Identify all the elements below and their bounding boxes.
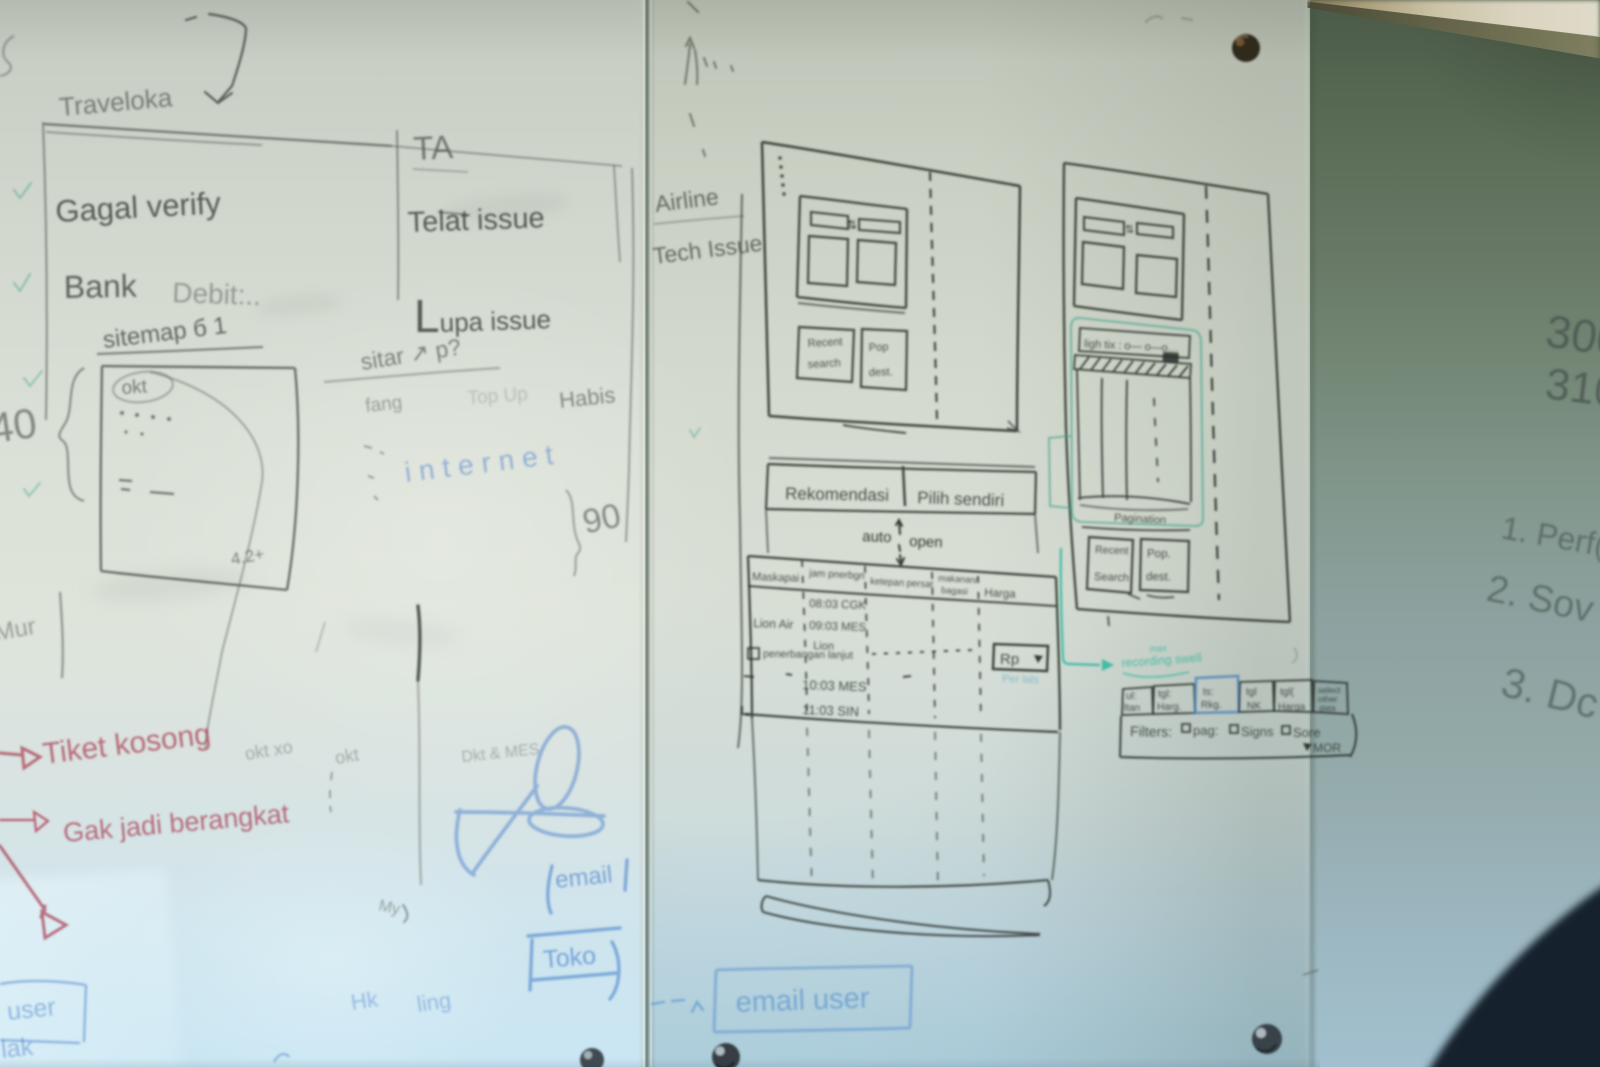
svg-text:ul:: ul: — [1126, 691, 1137, 702]
svg-text:310: 310 — [1543, 359, 1600, 417]
svg-text:Debit:..: Debit:.. — [172, 277, 262, 311]
svg-text:user: user — [6, 993, 57, 1026]
svg-text:09:03 MES: 09:03 MES — [809, 620, 867, 634]
svg-text:40: 40 — [0, 399, 40, 452]
svg-text:Telat issue: Telat issue — [407, 202, 545, 239]
svg-text:Signs: Signs — [1241, 724, 1274, 739]
svg-text:tgl: tgl — [1246, 687, 1257, 698]
svg-text:NK: NK — [1247, 701, 1261, 712]
svg-text:dest.: dest. — [1146, 571, 1171, 583]
svg-text:lak: lak — [0, 1033, 35, 1064]
svg-text:open: open — [909, 533, 943, 551]
svg-text:ts:: ts: — [1203, 687, 1214, 698]
svg-text:Tiket kosong: Tiket kosong — [41, 718, 213, 771]
svg-text:Habis: Habis — [558, 382, 617, 413]
svg-text:internet: internet — [403, 438, 563, 488]
svg-text:email: email — [554, 861, 614, 894]
svg-text:4.2+: 4.2+ — [229, 544, 265, 569]
svg-text:Recent: Recent — [807, 336, 842, 350]
svg-text:jam pnerbgn: jam pnerbgn — [808, 568, 865, 582]
svg-text:1. Perf(: 1. Perf( — [1499, 509, 1600, 563]
svg-text:Tech Issue: Tech Issue — [651, 230, 763, 269]
svg-text:MOR: MOR — [1313, 741, 1341, 755]
svg-text:90: 90 — [579, 496, 624, 541]
svg-text:okt: okt — [121, 376, 148, 399]
svg-text:Maskapai: Maskapai — [752, 571, 799, 585]
svg-text:Airline: Airline — [653, 183, 720, 217]
svg-text:tgl(: tgl( — [1280, 687, 1295, 698]
svg-text:okt xo: okt xo — [243, 737, 294, 764]
svg-text:ketepan persat: ketepan persat — [870, 576, 934, 590]
svg-text:Rkg.: Rkg. — [1201, 700, 1222, 711]
svg-text:Pop: Pop — [869, 341, 889, 354]
svg-text:TA: TA — [412, 128, 454, 167]
svg-text:08:03 CGK: 08:03 CGK — [809, 598, 867, 612]
svg-text:Toko: Toko — [542, 941, 597, 973]
svg-text:okt: okt — [333, 744, 360, 768]
svg-text:Per lals: Per lals — [1002, 673, 1040, 686]
svg-text:My: My — [377, 897, 401, 918]
svg-text:Search: Search — [1094, 571, 1129, 584]
svg-text:3. Dc: 3. Dc — [1497, 658, 1600, 727]
svg-text:data: data — [1319, 703, 1336, 713]
svg-text:fang: fang — [364, 392, 403, 417]
svg-text:ltan: ltan — [1124, 703, 1140, 714]
svg-text:sitemap б 1: sitemap б 1 — [101, 312, 228, 354]
svg-text:Harga: Harga — [1278, 702, 1306, 713]
svg-text:sitar ↗ p?: sitar ↗ p? — [359, 333, 463, 374]
svg-text:Hk: Hk — [349, 986, 380, 1015]
svg-text:⇅: ⇅ — [847, 218, 857, 232]
svg-text:penerbangan lanjut: penerbangan lanjut — [763, 648, 853, 662]
svg-text:Lion Air: Lion Air — [753, 616, 793, 631]
svg-text:L: L — [414, 290, 440, 342]
svg-text:bagasi: bagasi — [941, 585, 968, 596]
svg-text:Pagination: Pagination — [1114, 512, 1167, 527]
svg-text:Gak jadi berangkat: Gak jadi berangkat — [62, 798, 291, 848]
svg-text:Harg.: Harg. — [1157, 702, 1181, 713]
svg-text:Pop.: Pop. — [1147, 548, 1171, 560]
svg-text:Gagal verify: Gagal verify — [55, 185, 223, 229]
svg-text:300: 300 — [1543, 305, 1600, 367]
svg-text:makanan/: makanan/ — [938, 573, 978, 585]
svg-text:recording swell: recording swell — [1121, 650, 1202, 670]
svg-text:email user: email user — [735, 982, 870, 1019]
svg-text:Mur: Mur — [0, 613, 38, 647]
svg-text:Recent: Recent — [1095, 544, 1129, 557]
svg-text:Rekomendasi: Rekomendasi — [785, 484, 889, 505]
svg-text:Harga: Harga — [984, 587, 1017, 601]
svg-text:Sore: Sore — [1293, 725, 1320, 740]
svg-text:Bank: Bank — [63, 268, 138, 305]
svg-text:11:03 SIN: 11:03 SIN — [802, 702, 859, 719]
svg-text:Pilih sendiri: Pilih sendiri — [917, 488, 1005, 510]
svg-text:Filters:: Filters: — [1130, 723, 1172, 740]
svg-text:ling: ling — [415, 987, 452, 1017]
svg-text:tgl:: tgl: — [1158, 689, 1171, 700]
svg-text:Dkt & MES: Dkt & MES — [461, 741, 541, 766]
svg-text:dest.: dest. — [869, 366, 893, 379]
svg-text:2. Sov: 2. Sov — [1483, 568, 1597, 631]
svg-text:Rp: Rp — [1000, 651, 1019, 668]
svg-text:search: search — [807, 357, 841, 371]
svg-text:auto: auto — [862, 528, 892, 546]
svg-text:Traveloka: Traveloka — [58, 82, 174, 122]
svg-text:10:03 MES: 10:03 MES — [802, 677, 867, 694]
svg-text:⇅: ⇅ — [1125, 224, 1134, 236]
svg-text:Top Up: Top Up — [467, 384, 529, 409]
svg-text:pag:: pag: — [1193, 723, 1218, 738]
